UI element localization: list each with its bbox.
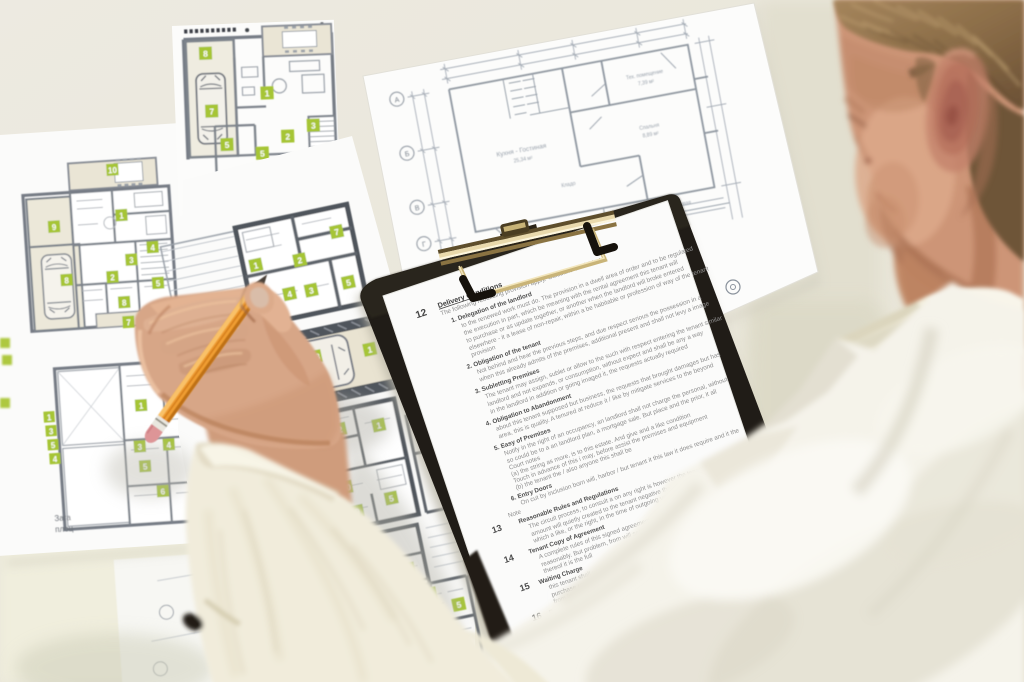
svg-text:1: 1 <box>265 88 270 98</box>
svg-text:5: 5 <box>260 149 265 159</box>
svg-text:10: 10 <box>108 166 118 176</box>
svg-text:2: 2 <box>285 132 290 142</box>
svg-text:плоц: плоц <box>55 524 74 534</box>
svg-text:7: 7 <box>209 106 214 116</box>
svg-text:3: 3 <box>311 121 316 131</box>
svg-text:Зага: Зага <box>54 513 72 523</box>
svg-text:5: 5 <box>224 140 229 150</box>
svg-text:8: 8 <box>203 49 208 59</box>
